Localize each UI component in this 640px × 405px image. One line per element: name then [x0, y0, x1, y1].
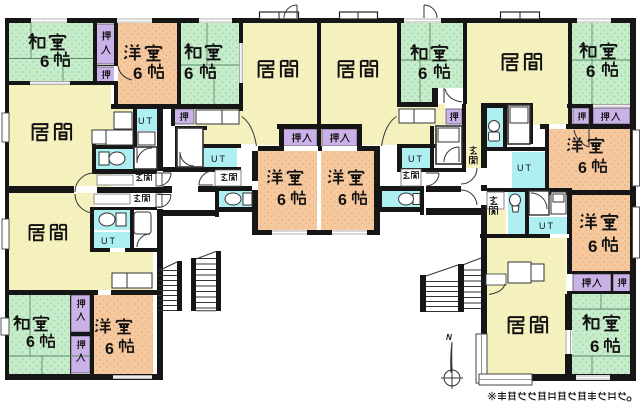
svg-text:UT: UT	[211, 154, 227, 164]
svg-text:UT: UT	[408, 154, 424, 164]
svg-text:6: 6	[578, 160, 587, 177]
svg-text:6: 6	[184, 64, 193, 83]
svg-text:6: 6	[338, 192, 347, 209]
svg-text:6: 6	[40, 52, 49, 71]
svg-text:6: 6	[26, 334, 35, 351]
svg-text:UT: UT	[101, 236, 117, 246]
svg-text:6: 6	[277, 192, 286, 209]
svg-text:UT: UT	[517, 163, 533, 173]
svg-text:UT: UT	[539, 221, 555, 231]
svg-text:6: 6	[588, 237, 597, 256]
svg-text:UT: UT	[138, 116, 154, 126]
svg-text:6: 6	[105, 341, 114, 358]
svg-text:N: N	[446, 333, 452, 342]
svg-text:6: 6	[418, 64, 427, 83]
svg-text:6: 6	[590, 337, 599, 356]
svg-text:6: 6	[133, 64, 142, 83]
svg-text:6: 6	[586, 62, 595, 81]
